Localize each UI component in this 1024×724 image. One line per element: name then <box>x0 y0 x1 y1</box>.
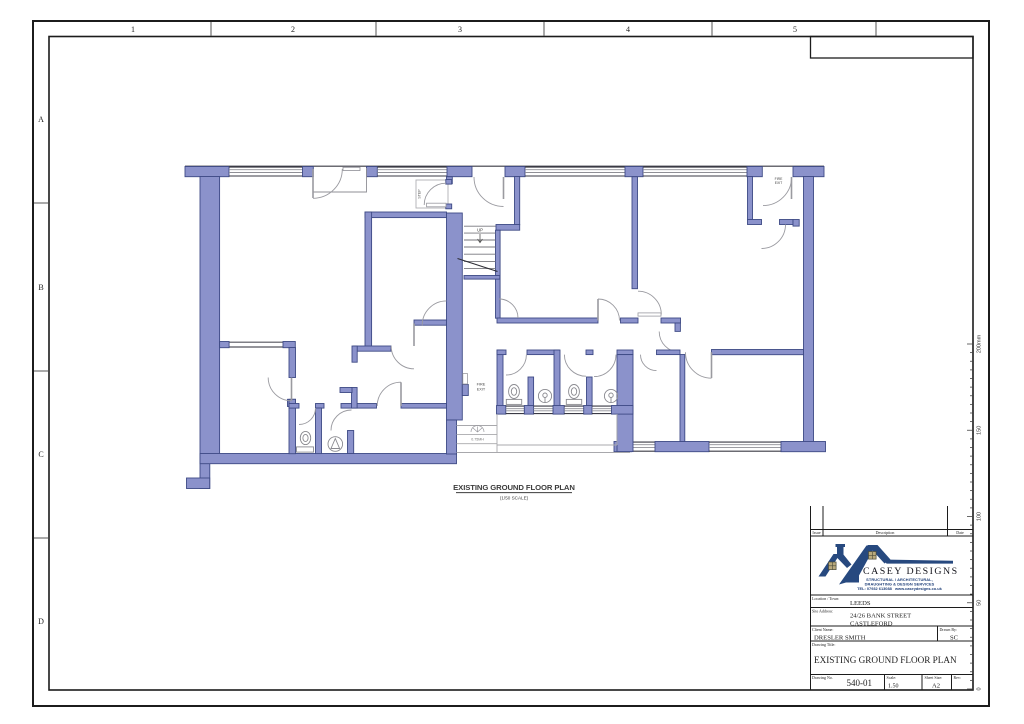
svg-text:5: 5 <box>793 25 797 34</box>
svg-text:Drawing Title:: Drawing Title: <box>812 642 835 647</box>
svg-text:EXISTING GROUND FLOOR PLAN: EXISTING GROUND FLOOR PLAN <box>814 655 957 665</box>
svg-text:Drawing No.: Drawing No. <box>812 675 833 680</box>
svg-text:2: 2 <box>291 25 295 34</box>
svg-text:(1/50 SCALE): (1/50 SCALE) <box>500 496 529 501</box>
svg-text:0.75MH: 0.75MH <box>471 437 484 441</box>
svg-text:Rev:: Rev: <box>954 675 962 680</box>
svg-text:150: 150 <box>977 426 983 435</box>
svg-text:3: 3 <box>458 25 462 34</box>
svg-text:UP: UP <box>477 228 483 233</box>
svg-text:4: 4 <box>626 25 630 34</box>
svg-text:CASTLEFORD: CASTLEFORD <box>850 620 893 627</box>
svg-text:540-01: 540-01 <box>847 678 873 688</box>
svg-text:D: D <box>38 617 44 626</box>
svg-text:50: 50 <box>977 600 983 606</box>
svg-text:EXIT: EXIT <box>775 181 783 185</box>
svg-text:DRESLER SMITH: DRESLER SMITH <box>814 635 866 642</box>
svg-text:1.50: 1.50 <box>888 684 899 690</box>
svg-text:200mm: 200mm <box>977 334 983 353</box>
svg-text:0: 0 <box>977 687 983 690</box>
svg-text:EXIT: EXIT <box>477 387 486 391</box>
svg-text:Sheet Size:: Sheet Size: <box>925 675 943 680</box>
svg-text:Client Name:: Client Name: <box>812 627 833 632</box>
svg-text:Date: Date <box>956 530 964 535</box>
svg-text:FIRE: FIRE <box>477 383 486 387</box>
svg-text:1: 1 <box>131 25 135 34</box>
svg-text:Site Address:: Site Address: <box>812 609 833 614</box>
svg-text:Scale:: Scale: <box>887 675 897 680</box>
svg-text:SC: SC <box>950 635 959 642</box>
svg-text:Description: Description <box>876 530 895 535</box>
svg-text:Drawn By:: Drawn By: <box>940 627 958 632</box>
svg-text:C: C <box>38 450 43 459</box>
svg-text:A: A <box>38 115 44 124</box>
svg-text:Issue: Issue <box>812 530 820 535</box>
svg-text:Location / Town:: Location / Town: <box>812 596 839 601</box>
svg-text:CASEY DESIGNS: CASEY DESIGNS <box>863 566 959 577</box>
svg-text:LEEDS: LEEDS <box>850 600 871 607</box>
svg-text:EXISTING GROUND FLOOR PLAN: EXISTING GROUND FLOOR PLAN <box>453 483 575 492</box>
svg-text:100: 100 <box>977 512 983 521</box>
svg-text:A2: A2 <box>932 683 940 690</box>
svg-text:TEL: 07932 613088 www.caseyd: TEL: 07932 613088 www.caseydesigns.co.uk <box>857 586 942 591</box>
svg-text:STEP: STEP <box>418 189 422 199</box>
svg-text:24/26 BANK STREET: 24/26 BANK STREET <box>850 613 911 620</box>
svg-text:B: B <box>38 283 43 292</box>
